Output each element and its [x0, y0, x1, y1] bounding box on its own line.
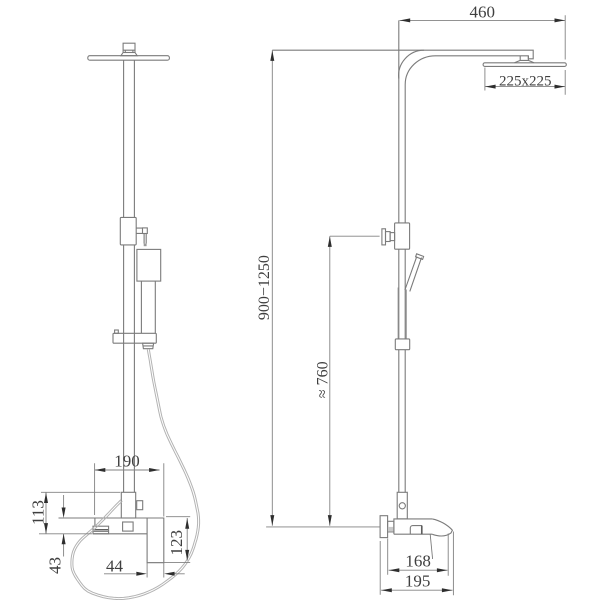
svg-text:460: 460	[469, 2, 495, 21]
svg-text:195: 195	[405, 572, 431, 591]
svg-text:190: 190	[114, 451, 140, 470]
svg-text:168: 168	[405, 552, 431, 571]
svg-text:43: 43	[45, 557, 64, 574]
svg-text:225x225: 225x225	[499, 74, 552, 90]
svg-text:≈ 760: ≈ 760	[314, 361, 331, 398]
svg-text:123: 123	[167, 530, 186, 556]
svg-text:900−1250: 900−1250	[256, 255, 273, 320]
svg-text:113: 113	[28, 500, 47, 525]
svg-text:44: 44	[106, 556, 124, 575]
